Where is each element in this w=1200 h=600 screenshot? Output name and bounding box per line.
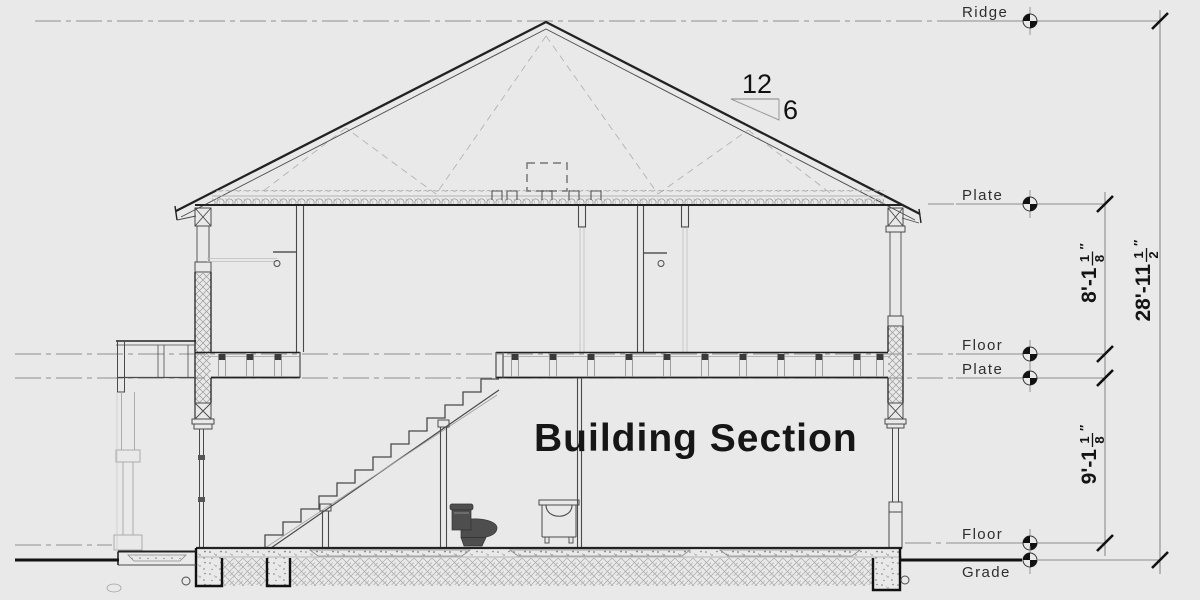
roof-pitch-run: 12 — [742, 69, 772, 99]
level-floor-main: Floor — [956, 526, 1105, 557]
right-soffit — [902, 218, 919, 223]
svg-text:″: ″ — [1077, 243, 1092, 249]
level-marker-icon — [1023, 371, 1037, 385]
svg-text:8: 8 — [1092, 436, 1107, 443]
level-plate-main: Plate — [956, 361, 1105, 392]
level-marker-icon — [1023, 197, 1037, 211]
svg-text:Ridge: Ridge — [962, 4, 1008, 21]
left-fascia — [175, 206, 177, 220]
svg-text:Floor: Floor — [962, 337, 1003, 354]
joist-blocking — [219, 354, 884, 377]
closet-shelf-and-pole-right — [644, 253, 667, 267]
svg-text:Plate: Plate — [962, 187, 1003, 204]
svg-text:28'-11: 28'-11 — [1132, 264, 1155, 322]
dim-main-floor-height: 9'-1 1 8 ″ — [1077, 425, 1107, 485]
level-grade: Grade — [962, 546, 1160, 581]
ceiling-insulation — [212, 190, 884, 204]
roof-outline — [176, 22, 920, 214]
stair-post-short — [320, 504, 331, 548]
svg-text:Plate: Plate — [962, 361, 1003, 378]
dim-upper-floor-height: 8'-1 1 8 ″ — [1077, 243, 1107, 303]
toilet-fixture — [450, 504, 497, 546]
reference-lines — [15, 21, 1020, 545]
level-ridge: Ridge — [956, 4, 1160, 35]
floor-framing-band — [195, 352, 888, 378]
closet-shelf-and-pole-left — [207, 252, 296, 267]
right-exterior-wall — [885, 208, 906, 548]
deck-post — [114, 392, 142, 551]
roof-pitch-triangle — [731, 99, 779, 120]
drain-pipe-icon — [901, 576, 909, 584]
attic-access-dashed — [527, 163, 567, 191]
truss-webs — [262, 36, 834, 196]
svg-text:1: 1 — [1077, 436, 1092, 443]
left-soffit — [177, 216, 196, 220]
svg-text:Grade: Grade — [962, 564, 1011, 581]
svg-text:9'-1: 9'-1 — [1078, 449, 1101, 485]
roof — [175, 22, 921, 223]
level-marker-icon — [1023, 14, 1037, 28]
dim-overall-height: 28'-11 1 2 ″ — [1131, 240, 1161, 322]
level-marker-icon — [1023, 347, 1037, 361]
dimension-lines: 8'-1 1 8 ″ 28'-11 1 2 ″ 9'-1 1 8 ″ — [1077, 10, 1168, 574]
right-fascia — [919, 209, 921, 223]
level-annotations: Ridge Plate Floor Plate Floor — [956, 4, 1160, 581]
roof-pitch-symbol: 12 6 — [731, 69, 798, 125]
svg-text:″: ″ — [1131, 240, 1146, 246]
svg-text:8'-1: 8'-1 — [1078, 267, 1101, 303]
closet-pole-icon — [658, 261, 664, 267]
building-section-drawing: 12 6 Building Section Ridge Plate Floor — [0, 0, 1200, 600]
door-header-1 — [578, 206, 586, 352]
level-plate-upper: Plate — [956, 187, 1105, 218]
svg-text:″: ″ — [1077, 425, 1092, 431]
svg-text:2: 2 — [1146, 251, 1161, 258]
section-title: Building Section — [534, 417, 858, 460]
left-exterior-wall — [192, 208, 214, 429]
sink-fixture — [539, 500, 579, 543]
architectural-sheet: 12 6 Building Section Ridge Plate Floor — [0, 0, 1200, 600]
bath-wall — [578, 378, 582, 548]
drain-pipe-icon — [182, 577, 190, 585]
roof-pitch-rise: 6 — [783, 95, 798, 125]
svg-text:1: 1 — [1077, 255, 1092, 262]
upper-interior-walls — [207, 206, 689, 352]
deck — [116, 341, 196, 392]
svg-text:1: 1 — [1131, 251, 1146, 258]
stair-post-tall — [438, 420, 449, 548]
door-header-2 — [681, 206, 689, 352]
svg-text:Floor: Floor — [962, 526, 1003, 543]
left-lower-wall — [198, 429, 205, 549]
svg-text:8: 8 — [1092, 255, 1107, 262]
level-marker-icon — [1023, 553, 1037, 567]
foundation — [15, 548, 1022, 592]
